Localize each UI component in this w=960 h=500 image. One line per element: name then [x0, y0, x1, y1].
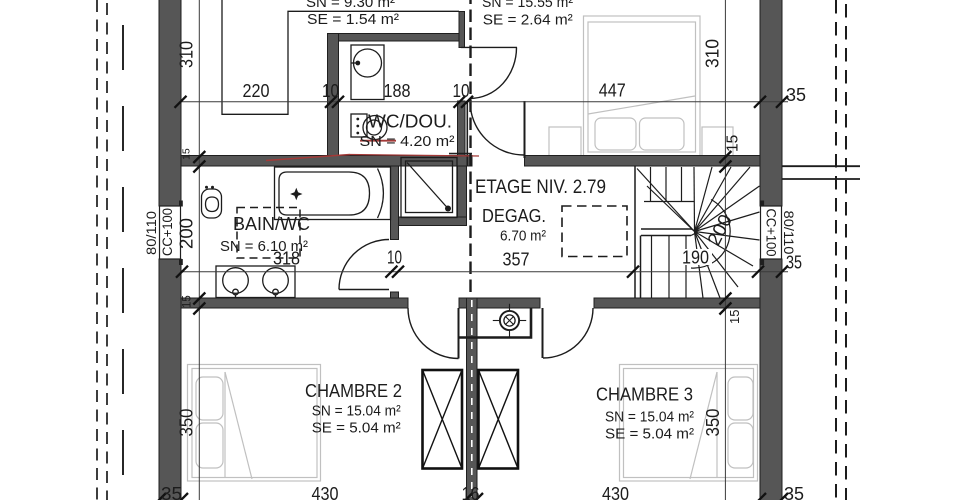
svg-text:15: 15	[181, 148, 193, 160]
svg-text:15: 15	[725, 135, 742, 152]
svg-text:220: 220	[243, 80, 270, 101]
svg-text:10: 10	[453, 80, 470, 101]
svg-text:SE = 1.54 m²: SE = 1.54 m²	[307, 11, 399, 28]
svg-text:CHAMBRE 3: CHAMBRE 3	[596, 384, 693, 405]
svg-text:15: 15	[727, 310, 742, 324]
svg-text:SN = 4.20 m²: SN = 4.20 m²	[360, 133, 455, 150]
svg-text:80/110: 80/110	[781, 211, 796, 255]
svg-text:16: 16	[462, 483, 480, 500]
svg-text:35: 35	[161, 483, 182, 500]
svg-text:10: 10	[387, 247, 402, 268]
svg-text:WC/DOU.: WC/DOU.	[368, 111, 452, 132]
svg-text:188: 188	[384, 80, 411, 101]
svg-text:SN = 9.30 m²: SN = 9.30 m²	[306, 0, 395, 11]
svg-text:DEGAG.: DEGAG.	[482, 205, 546, 226]
svg-text:15: 15	[182, 295, 194, 308]
svg-text:CHAMBRE 2: CHAMBRE 2	[305, 380, 402, 401]
svg-text:35: 35	[786, 84, 806, 105]
svg-text:CC+100: CC+100	[764, 209, 779, 257]
svg-text:430: 430	[602, 483, 629, 500]
svg-text:SE = 5.04 m²: SE = 5.04 m²	[312, 419, 401, 436]
svg-text:357: 357	[503, 249, 530, 270]
svg-text:SE = 2.64 m²: SE = 2.64 m²	[483, 12, 573, 29]
svg-text:35: 35	[786, 252, 802, 273]
svg-text:10: 10	[322, 80, 339, 101]
svg-text:SN = 15.55 m²: SN = 15.55 m²	[482, 0, 573, 11]
svg-text:190: 190	[682, 247, 709, 268]
svg-text:200: 200	[176, 218, 197, 249]
svg-text:SE = 5.04 m²: SE = 5.04 m²	[605, 425, 694, 442]
svg-text:SN = 15.04 m²: SN = 15.04 m²	[312, 402, 401, 419]
svg-text:ETAGE NIV. 2.79: ETAGE NIV. 2.79	[475, 176, 606, 198]
svg-text:SN = 15.04 m²: SN = 15.04 m²	[605, 409, 694, 426]
svg-text:350: 350	[702, 409, 723, 437]
svg-text:CC+100: CC+100	[160, 208, 175, 256]
svg-text:6.70 m²: 6.70 m²	[500, 228, 546, 245]
svg-text:430: 430	[312, 483, 339, 500]
svg-text:80/110: 80/110	[144, 211, 159, 255]
svg-text:310: 310	[176, 41, 197, 68]
svg-text:35: 35	[784, 483, 804, 500]
svg-text:350: 350	[176, 409, 197, 437]
svg-text:SN = 6.10 m²: SN = 6.10 m²	[220, 238, 308, 255]
svg-text:310: 310	[702, 39, 723, 68]
svg-text:BAIN/WC: BAIN/WC	[233, 213, 310, 234]
svg-text:447: 447	[599, 80, 626, 101]
